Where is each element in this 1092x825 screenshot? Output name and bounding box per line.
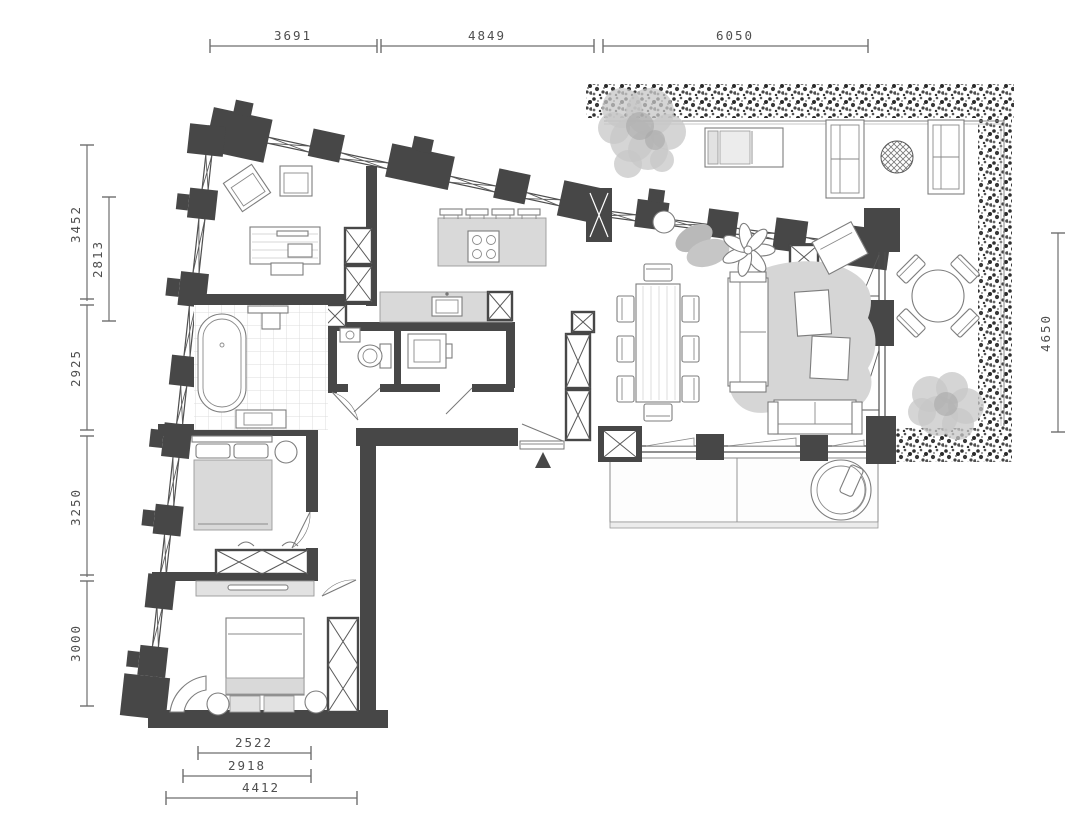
dresser bbox=[196, 581, 314, 596]
dim-left-1: 3452 bbox=[68, 145, 94, 305]
dim-label: 6050 bbox=[716, 28, 754, 43]
entrance-triangle-marker bbox=[535, 452, 551, 468]
woven-side-table bbox=[881, 141, 913, 173]
bed bbox=[226, 618, 304, 712]
desk bbox=[250, 227, 320, 264]
dim-label: 4650 bbox=[1038, 314, 1053, 352]
dim-label: 3691 bbox=[274, 28, 312, 43]
cooktop bbox=[468, 231, 499, 262]
dim-top-3: 6050 bbox=[603, 28, 868, 53]
dim-bottom-1: 2522 bbox=[198, 735, 311, 760]
wall-north-west bbox=[205, 93, 604, 233]
south-platform bbox=[610, 458, 878, 528]
dim-top-1: 3691 bbox=[210, 28, 377, 53]
sofa-south bbox=[768, 400, 862, 434]
outdoor-sofa-right bbox=[928, 120, 964, 194]
entrance-door-leaf bbox=[522, 424, 563, 441]
bathtub bbox=[198, 314, 246, 412]
dim-bottom-3: 4412 bbox=[166, 780, 357, 805]
bedside-table bbox=[275, 441, 297, 463]
dim-left-2: 2925 bbox=[68, 305, 94, 430]
wash-basin bbox=[340, 328, 360, 342]
entrance-threshold bbox=[520, 441, 564, 449]
papasan-chair bbox=[811, 460, 871, 520]
coffee-table-2 bbox=[810, 336, 850, 380]
tall-cabinets bbox=[345, 228, 372, 302]
dim-label: 2925 bbox=[68, 349, 83, 387]
utility-room bbox=[408, 334, 452, 368]
entry-cabinets bbox=[566, 312, 594, 440]
outdoor-sofa-left bbox=[826, 120, 864, 198]
chaise-lounge bbox=[705, 128, 783, 167]
stool bbox=[207, 693, 229, 715]
wall-south-living bbox=[642, 434, 866, 461]
column-kitchen-terrace bbox=[586, 188, 612, 242]
front-room bbox=[223, 164, 320, 275]
dim-label: 4849 bbox=[468, 28, 506, 43]
living-dining bbox=[617, 211, 876, 434]
dim-label: 2522 bbox=[235, 735, 273, 750]
dim-left-3: 3250 bbox=[68, 436, 94, 581]
wall-south-hall bbox=[356, 424, 564, 468]
wardrobe-2 bbox=[328, 618, 358, 712]
coffee-table-1 bbox=[795, 290, 832, 336]
outdoor-round-dining-table bbox=[896, 254, 980, 338]
column-entry bbox=[598, 426, 642, 462]
armchair-angled bbox=[223, 164, 270, 211]
bathroom bbox=[194, 305, 328, 430]
master-bedroom bbox=[192, 436, 308, 574]
dim-label: 3250 bbox=[68, 488, 83, 526]
dim-label: 4412 bbox=[242, 780, 280, 795]
stool bbox=[305, 691, 327, 713]
double-bed bbox=[192, 436, 272, 530]
counter-cabinet bbox=[488, 292, 512, 320]
bar-stools bbox=[440, 209, 540, 219]
bench bbox=[271, 263, 303, 275]
vanity bbox=[236, 410, 286, 428]
toilet bbox=[358, 344, 391, 368]
floor-plan-canvas: 3691 4849 6050 3452 2925 3250 bbox=[0, 0, 1092, 825]
wall-east-bedroom-wing bbox=[360, 444, 376, 714]
dim-label: 2813 bbox=[90, 240, 105, 278]
dim-top-2: 4849 bbox=[381, 28, 594, 53]
second-bedroom bbox=[170, 618, 358, 715]
sofa-west bbox=[728, 272, 768, 392]
dim-left-inner: 2813 bbox=[90, 197, 116, 321]
armchair bbox=[280, 166, 312, 196]
dim-label: 3000 bbox=[68, 624, 83, 662]
dining-table bbox=[636, 284, 680, 402]
curved-chair bbox=[170, 676, 206, 712]
toilet-room bbox=[340, 328, 391, 368]
dim-left-4: 3000 bbox=[68, 581, 94, 706]
dim-label: 2918 bbox=[228, 758, 266, 773]
dim-right-1: 4650 bbox=[1038, 233, 1065, 432]
dim-label: 3452 bbox=[68, 205, 83, 243]
